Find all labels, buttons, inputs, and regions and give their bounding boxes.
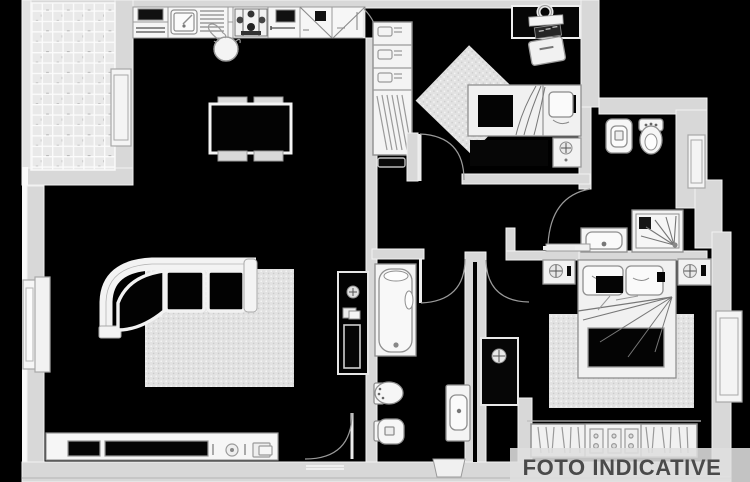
svg-text:FOTO INDICATIVE: FOTO INDICATIVE bbox=[523, 455, 722, 480]
